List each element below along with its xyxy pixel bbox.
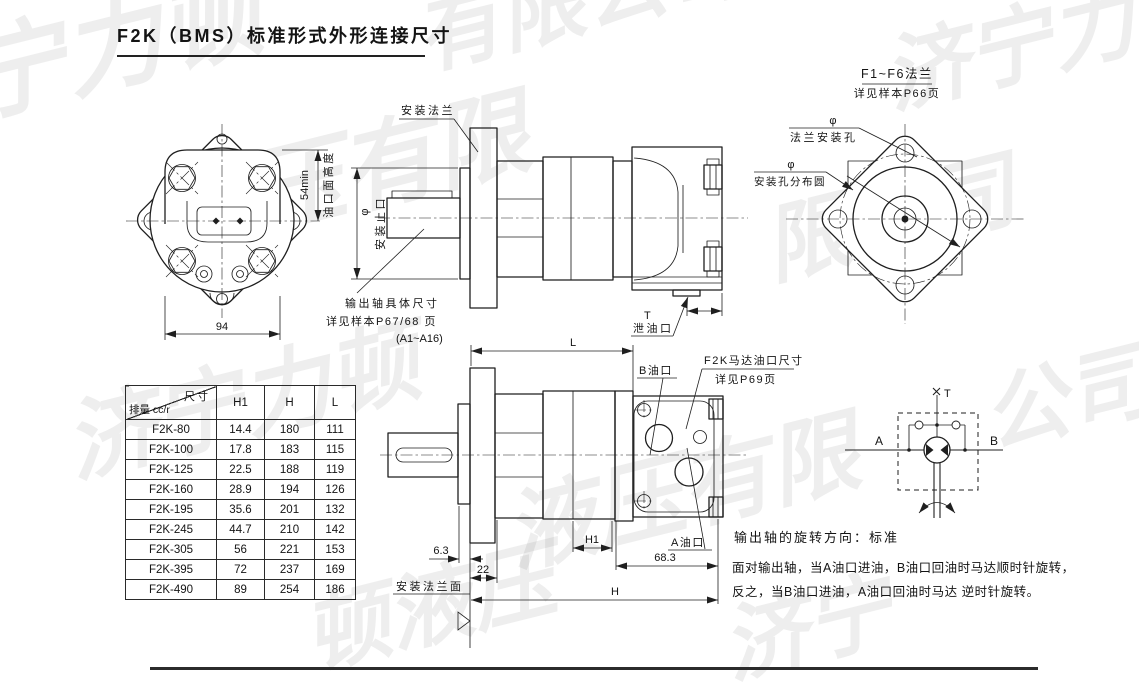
cell-model: F2K-100 (126, 440, 217, 460)
cell-H1: 56 (217, 540, 265, 560)
catalog-page: 宁力顿 有限公司 济宁力 液压有限 限公司 济宁力顿 液压有限 公司 顿液压 济… (0, 0, 1139, 690)
cell-L: 169 (315, 560, 356, 580)
dim-6-3-label: 6.3 (433, 545, 448, 557)
cell-model: F2K-490 (126, 580, 217, 600)
flange-face-label: 安装法兰面 (396, 579, 464, 593)
cell-H1: 44.7 (217, 520, 265, 540)
cell-model: F2K-395 (126, 560, 217, 580)
cell-L: 111 (315, 420, 356, 440)
cell-H: 180 (265, 420, 315, 440)
cell-L: 153 (315, 540, 356, 560)
cell-H: 194 (265, 480, 315, 500)
phi-hole-circle-label: φ (787, 159, 794, 171)
dim-H-label: H (611, 586, 619, 598)
mount-spigot-label: 安装止口 (373, 196, 387, 250)
cell-H1: 17.8 (217, 440, 265, 460)
phi-flange-hole-label: φ (829, 115, 836, 127)
table-row: F2K-10017.8183115 (126, 440, 356, 460)
symbol-B-label: B (990, 434, 998, 448)
flange-hole-label: 法兰安装孔 (790, 130, 858, 144)
drain-port-label: 泄油口 (633, 321, 674, 335)
dim-H1-label: H1 (585, 534, 599, 546)
cell-H: 201 (265, 500, 315, 520)
port-size-note-line1: F2K马达油口尺寸 (704, 353, 804, 367)
cell-H: 254 (265, 580, 315, 600)
corner-label-size: 尺寸 (184, 388, 210, 404)
phi-spigot-label: φ (359, 208, 371, 215)
title-underline (117, 55, 425, 57)
table-row: F2K-12522.5188119 (126, 460, 356, 480)
column-header-L: L (315, 386, 356, 420)
cell-H: 210 (265, 520, 315, 540)
b-port-label: B油口 (639, 363, 673, 377)
cell-L: 186 (315, 580, 356, 600)
cell-H1: 28.9 (217, 480, 265, 500)
corner-label-displacement: 排量 cc/r (129, 402, 170, 417)
table-row: F2K-8014.4180111 (126, 420, 356, 440)
dim-68-3-label: 68.3 (654, 552, 675, 564)
cell-H: 183 (265, 440, 315, 460)
flange-series-subtitle: 详见样本P66页 (854, 86, 941, 100)
footer-rule (150, 667, 1038, 670)
cell-model: F2K-160 (126, 480, 217, 500)
port-size-note-line2: 详见P69页 (715, 372, 777, 386)
cell-H1: 89 (217, 580, 265, 600)
table-row: F2K-49089254186 (126, 580, 356, 600)
shaft-note-line1: 输出轴具体尺寸 (345, 296, 440, 310)
cell-H1: 22.5 (217, 460, 265, 480)
cell-model: F2K-245 (126, 520, 217, 540)
table-row: F2K-39572237169 (126, 560, 356, 580)
t-port-label: T (644, 310, 651, 322)
cell-model: F2K-305 (126, 540, 217, 560)
cell-H: 237 (265, 560, 315, 580)
table-row: F2K-30556221153 (126, 540, 356, 560)
a-port-label: A油口 (671, 535, 705, 549)
cell-L: 115 (315, 440, 356, 460)
cell-H: 188 (265, 460, 315, 480)
bottom-side-view-drawing: L H1 68.3 6.3 22 H 安装法兰面 (380, 337, 804, 648)
cell-model: F2K-80 (126, 420, 217, 440)
flange-view-drawing: φ 法兰安装孔 φ 安装孔分布圆 F1~F6法兰 详见样本P66页 (754, 67, 1024, 324)
port-face-height-label: 油口面高度 (321, 150, 335, 218)
table-row: F2K-16028.9194126 (126, 480, 356, 500)
cell-L: 126 (315, 480, 356, 500)
cell-H1: 72 (217, 560, 265, 580)
dim-54min-label: 54min (299, 170, 311, 200)
cell-model: F2K-195 (126, 500, 217, 520)
hole-circle-label: 安装孔分布圆 (754, 175, 826, 188)
cell-H1: 35.6 (217, 500, 265, 520)
cell-H: 221 (265, 540, 315, 560)
table-header-row: 尺寸 排量 cc/r H1 H L (126, 386, 356, 420)
mount-flange-label: 安装法兰 (401, 103, 455, 117)
flange-series-title: F1~F6法兰 (861, 67, 933, 81)
page-title: F2K（BMS）标准形式外形连接尺寸 (117, 22, 452, 48)
cell-model: F2K-125 (126, 460, 217, 480)
shaft-note-line3: (A1~A16) (396, 333, 443, 345)
cell-L: 132 (315, 500, 356, 520)
column-header-H: H (265, 386, 315, 420)
rotation-note-title: 输出轴的旋转方向：标准 (734, 527, 899, 546)
cell-H1: 14.4 (217, 420, 265, 440)
rotation-note-line2: 面对输出轴，当A油口进油，B油口回油时马达顺时针旋转， (732, 557, 1075, 576)
side-view-drawing: 安装法兰 φ 安装止口 输出轴具体尺寸 详见样本P67/68 页 (A1~A16… (326, 103, 748, 345)
dim-94-label: 94 (216, 321, 228, 333)
symbol-T-label: T (944, 388, 951, 400)
dim-22-label: 22 (477, 564, 489, 576)
dim-L-label: L (570, 337, 576, 349)
table-row: F2K-24544.7210142 (126, 520, 356, 540)
shaft-note-line2: 详见样本P67/68 页 (326, 314, 437, 328)
table-row: F2K-19535.6201132 (126, 500, 356, 520)
dimension-table: 尺寸 排量 cc/r H1 H L F2K-8014.4180111 F2K-1… (125, 385, 356, 600)
rotation-note-line3: 反之，当B油口进油，A油口回油时马达 逆时针旋转。 (732, 581, 1040, 600)
table-corner-cell: 尺寸 排量 cc/r (126, 386, 217, 420)
end-view-drawing: 94 54min 油口面高度 (126, 124, 335, 340)
symbol-A-label: A (875, 434, 883, 448)
cell-L: 142 (315, 520, 356, 540)
column-header-H1: H1 (217, 386, 265, 420)
hydraulic-symbol: T A B (845, 388, 1003, 518)
cell-L: 119 (315, 460, 356, 480)
